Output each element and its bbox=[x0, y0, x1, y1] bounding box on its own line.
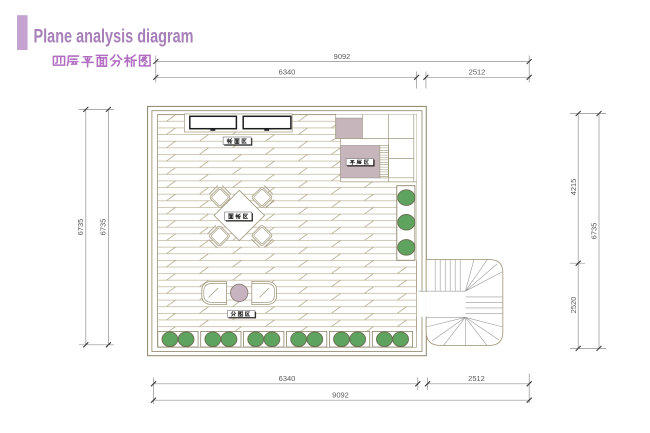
svg-text:9092: 9092 bbox=[334, 52, 351, 61]
svg-text:6340: 6340 bbox=[279, 68, 296, 77]
svg-text:2520: 2520 bbox=[569, 297, 578, 314]
svg-text:2512: 2512 bbox=[468, 374, 485, 383]
svg-text:6340: 6340 bbox=[279, 374, 296, 383]
svg-text:9092: 9092 bbox=[332, 391, 349, 400]
svg-text:6735: 6735 bbox=[99, 219, 108, 236]
svg-text:6735: 6735 bbox=[590, 223, 599, 240]
svg-text:Plane analysis diagram: Plane analysis diagram bbox=[34, 26, 194, 47]
svg-text:6735: 6735 bbox=[76, 219, 85, 236]
svg-text:2512: 2512 bbox=[469, 68, 486, 77]
svg-text:4215: 4215 bbox=[569, 179, 578, 196]
